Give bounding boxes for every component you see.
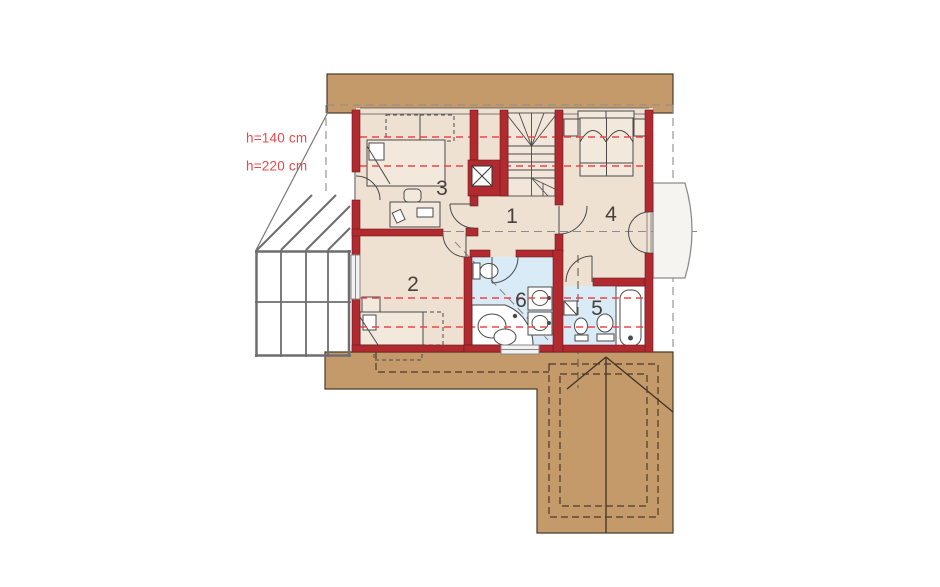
room-label-2: 2	[407, 273, 419, 297]
nightstand	[564, 119, 578, 136]
tub-faucet	[513, 314, 516, 317]
pillow	[363, 315, 376, 330]
conservatory	[255, 112, 351, 357]
toilet-cistern	[473, 263, 480, 279]
toilet-bowl	[480, 264, 498, 279]
room-label-6: 6	[515, 289, 527, 313]
bidet	[575, 318, 588, 334]
top-roof	[327, 74, 673, 113]
bidet-base	[575, 335, 588, 341]
tub-basin	[494, 329, 516, 345]
staircase	[508, 113, 555, 196]
toilet-base	[597, 334, 614, 341]
room-label-3: 3	[436, 177, 448, 201]
bottom-roof	[325, 352, 673, 533]
room-label-4: 4	[605, 203, 617, 227]
room-label-1: 1	[506, 205, 518, 229]
room-label-5: 5	[591, 297, 603, 321]
tub-drain	[629, 336, 633, 340]
height-annotation-220: h=220 cm	[246, 159, 307, 174]
nightstand	[362, 297, 380, 313]
desk-monitor	[417, 208, 433, 217]
floor-plan-drawing	[0, 0, 940, 587]
chimney-symbol	[472, 166, 492, 186]
floor-plan-canvas: h=140 cm h=220 cm 1 2 3 4 5 6	[0, 0, 940, 587]
height-annotation-140: h=140 cm	[246, 131, 307, 146]
balcony	[653, 183, 692, 278]
desk-chair	[404, 189, 421, 202]
pillow	[369, 143, 384, 160]
